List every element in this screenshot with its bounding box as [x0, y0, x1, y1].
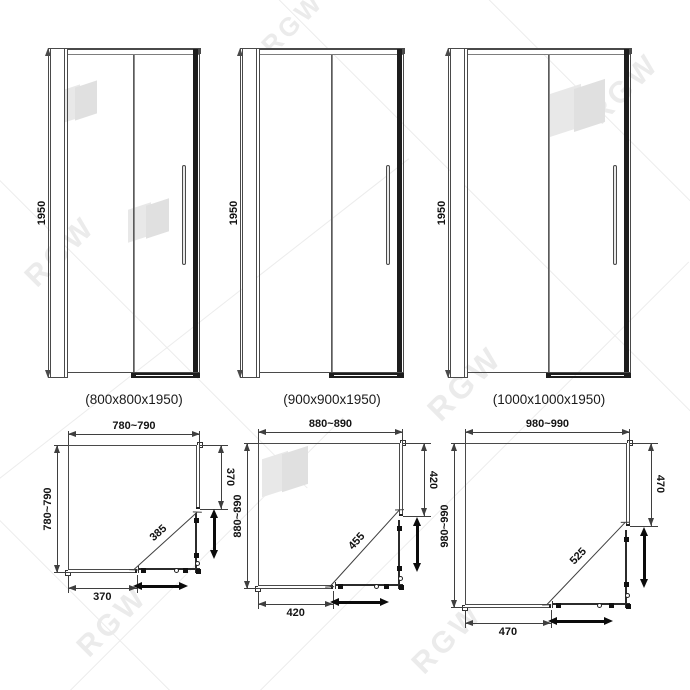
corner-post	[399, 585, 404, 590]
bottom-rail	[133, 373, 200, 378]
roller-dot	[625, 593, 630, 598]
roller-dot	[174, 568, 179, 573]
roller-marker	[338, 584, 343, 589]
width-dim-label: 980~990	[465, 417, 630, 431]
top-rail	[260, 48, 403, 55]
roller-marker	[556, 603, 561, 608]
sliding-door-bottom	[552, 603, 630, 605]
depth-dim-label: 880~890	[231, 441, 245, 591]
width-dim-label: 880~890	[258, 417, 403, 431]
wall-line-top	[465, 443, 630, 444]
slide-direction-horizontal-arrow-icon	[141, 585, 181, 588]
width-dim-line	[68, 434, 200, 435]
front-view-800: 1950	[48, 48, 200, 378]
roller-marker	[194, 553, 199, 558]
side-panel-profile	[450, 48, 465, 378]
technical-drawing-canvas: RGW RGW RGW RGW RGW RGW 1950 (800x800x19…	[0, 0, 690, 690]
height-dim-label: 1950	[35, 143, 49, 283]
sliding-door-bottom	[138, 568, 200, 570]
roller-marker	[624, 537, 629, 542]
corner-post	[196, 569, 201, 574]
plan-view-1000: 980~990 980~990 470 470 525	[465, 443, 630, 608]
bottom-panel-dim-line	[465, 623, 551, 624]
roller-dot	[195, 561, 200, 566]
bottom-rail	[331, 373, 404, 378]
depth-dim-label: 980~990	[438, 451, 452, 601]
glass-panel-divider	[548, 55, 550, 373]
door-end-tick	[552, 601, 553, 608]
corner-post	[626, 604, 631, 609]
glass-panel-divider	[133, 55, 135, 373]
bottom-panel-dim-label: 420	[258, 606, 333, 620]
fixed-glass-panel-bottom	[258, 585, 333, 589]
bottom-panel-dim-label: 470	[465, 625, 551, 639]
right-panel-dim-label: 470	[653, 409, 667, 559]
plan-view-900: 880~890 880~890 420 420 455	[258, 443, 403, 589]
width-dim-line	[465, 432, 630, 433]
slide-direction-vertical-arrow-icon	[213, 517, 216, 552]
fixed-glass-panel-bottom	[68, 569, 137, 573]
wall-line-top	[68, 445, 200, 446]
wall-line-left	[465, 443, 466, 608]
wall-line-left	[258, 443, 259, 589]
glass-panel-divider	[331, 55, 333, 373]
roller-marker	[397, 526, 402, 531]
slide-direction-horizontal-arrow-icon	[556, 620, 606, 623]
right-panel-dim-line	[424, 443, 425, 516]
slide-direction-horizontal-arrow-icon	[338, 601, 382, 604]
right-wall-profile	[397, 49, 402, 378]
entry-diagonal-dim-label: 385	[148, 523, 170, 544]
depth-dim-line	[247, 443, 248, 589]
sliding-door-bottom	[335, 584, 403, 586]
top-rail	[468, 48, 630, 55]
bottom-rail	[548, 373, 630, 378]
width-dim-line	[258, 432, 403, 433]
right-wall-profile	[193, 49, 198, 378]
roller-marker	[397, 566, 402, 571]
door-handle	[386, 165, 390, 265]
door-frame	[467, 48, 631, 378]
door-end-tick	[335, 582, 336, 589]
slide-direction-vertical-arrow-icon	[416, 525, 419, 564]
entry-diagonal-dim-line: 385	[134, 512, 198, 570]
fixed-glass-panel-right	[626, 443, 630, 526]
side-panel-profile	[50, 48, 65, 378]
roller-dot	[398, 576, 403, 581]
width-dim-label: 780~790	[68, 419, 200, 433]
door-frame	[67, 48, 200, 378]
bottom-panel-dim-line	[68, 588, 137, 589]
entry-diagonal-dim-line: 455	[330, 510, 400, 587]
roller-marker	[609, 603, 614, 608]
height-dim-label: 1950	[435, 143, 449, 283]
watermark-brand-text: RGW	[405, 597, 489, 681]
front-view-900: 1950	[240, 48, 404, 378]
size-caption-900: (900x900x1950)	[257, 392, 407, 407]
wall-line-left	[68, 445, 69, 573]
entry-diagonal-dim-line: 525	[547, 522, 626, 605]
fixed-glass-panel-right	[399, 443, 403, 516]
right-panel-dim-line	[651, 443, 652, 526]
fixed-glass-panel-bottom	[465, 604, 551, 608]
roller-marker	[141, 568, 146, 573]
roller-marker	[183, 568, 188, 573]
side-panel-profile	[242, 48, 257, 378]
right-panel-dim-line	[221, 445, 222, 509]
slide-direction-vertical-arrow-icon	[643, 535, 646, 580]
roller-marker	[624, 582, 629, 587]
size-caption-800: (800x800x1950)	[59, 392, 209, 407]
door-handle	[613, 165, 617, 265]
top-rail	[68, 48, 199, 55]
plan-view-800: 780~790 780~790 370 370 385	[68, 445, 200, 573]
roller-marker	[194, 518, 199, 523]
wall-line-top	[258, 443, 403, 444]
front-view-1000: 1950	[448, 48, 631, 378]
bottom-panel-dim-line	[258, 604, 333, 605]
door-handle	[182, 165, 186, 265]
depth-dim-line	[454, 443, 455, 608]
entry-diagonal-dim-label: 525	[568, 546, 589, 568]
roller-dot	[597, 603, 602, 608]
height-dim-label: 1950	[227, 143, 241, 283]
right-wall-profile	[624, 49, 629, 378]
roller-dot	[374, 584, 379, 589]
door-frame	[259, 48, 404, 378]
entry-diagonal-dim-label: 455	[346, 530, 367, 552]
bottom-panel-dim-label: 370	[68, 590, 137, 604]
fixed-glass-panel-right	[196, 445, 200, 509]
depth-dim-line	[57, 445, 58, 573]
roller-marker	[384, 584, 389, 589]
size-caption-1000: (1000x1000x1950)	[474, 392, 624, 407]
depth-dim-label: 780~790	[41, 434, 55, 584]
